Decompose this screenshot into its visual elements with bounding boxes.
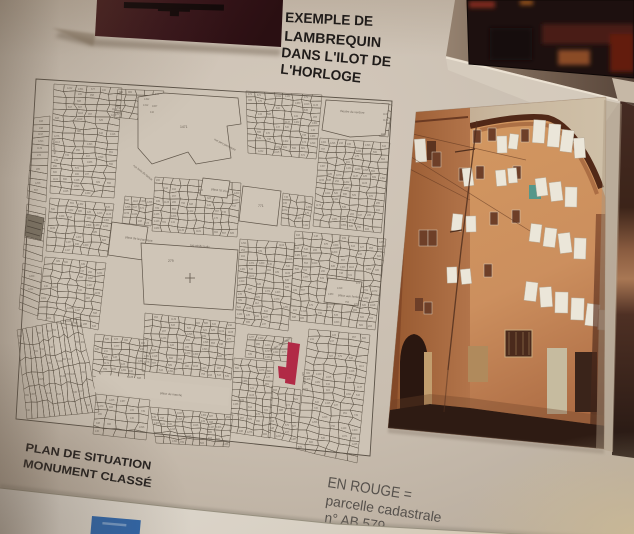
svg-text:1013: 1013 — [304, 103, 310, 106]
svg-text:566: 566 — [295, 268, 300, 271]
svg-text:592: 592 — [79, 276, 84, 279]
svg-text:1020: 1020 — [312, 262, 318, 265]
svg-text:957: 957 — [352, 336, 357, 339]
svg-text:1181: 1181 — [196, 230, 202, 233]
svg-text:300: 300 — [64, 261, 69, 264]
svg-text:1260: 1260 — [265, 344, 271, 347]
svg-text:493: 493 — [381, 133, 386, 136]
svg-text:1301: 1301 — [104, 219, 110, 222]
svg-text:274: 274 — [286, 404, 291, 407]
svg-text:1062: 1062 — [68, 209, 74, 212]
svg-text:771: 771 — [258, 204, 264, 208]
svg-text:902: 902 — [263, 433, 268, 436]
svg-text:1068: 1068 — [287, 258, 293, 261]
svg-text:189: 189 — [275, 271, 280, 274]
svg-text:1284: 1284 — [379, 241, 385, 244]
svg-text:1345: 1345 — [325, 402, 331, 405]
svg-text:127: 127 — [266, 376, 271, 379]
svg-text:399: 399 — [306, 372, 311, 375]
svg-text:721: 721 — [348, 274, 353, 277]
svg-text:1054: 1054 — [341, 224, 347, 227]
svg-text:621: 621 — [294, 398, 299, 401]
svg-text:497: 497 — [303, 255, 308, 258]
svg-text:747: 747 — [232, 205, 237, 208]
svg-text:1408: 1408 — [305, 378, 311, 381]
svg-text:1015: 1015 — [274, 151, 280, 154]
svg-text:146: 146 — [311, 129, 316, 132]
svg-text:715: 715 — [284, 196, 289, 199]
svg-text:553: 553 — [304, 262, 309, 265]
svg-text:401: 401 — [346, 161, 351, 164]
svg-text:955: 955 — [256, 343, 261, 346]
svg-text:1258: 1258 — [147, 201, 153, 204]
svg-text:1095: 1095 — [363, 169, 369, 172]
svg-text:1126: 1126 — [106, 213, 112, 216]
svg-text:1168: 1168 — [383, 113, 389, 116]
svg-text:510: 510 — [304, 248, 309, 251]
svg-text:1234: 1234 — [97, 272, 103, 275]
svg-text:967: 967 — [240, 417, 245, 420]
svg-text:1089: 1089 — [154, 227, 160, 230]
svg-text:579: 579 — [338, 355, 343, 358]
svg-text:1053: 1053 — [334, 321, 340, 324]
svg-text:811: 811 — [283, 146, 287, 149]
svg-text:953: 953 — [369, 247, 374, 250]
svg-text:518: 518 — [68, 216, 73, 219]
svg-text:1440: 1440 — [316, 373, 322, 376]
svg-text:701: 701 — [364, 289, 369, 292]
svg-text:588: 588 — [267, 113, 272, 116]
svg-text:349: 349 — [81, 263, 86, 266]
svg-text:516: 516 — [356, 394, 361, 397]
svg-text:292: 292 — [88, 271, 93, 274]
svg-text:1436: 1436 — [154, 213, 160, 216]
svg-text:895: 895 — [78, 210, 83, 213]
svg-text:391: 391 — [267, 269, 272, 272]
svg-text:185: 185 — [328, 173, 333, 176]
svg-text:1392: 1392 — [380, 177, 386, 180]
svg-text:1443: 1443 — [154, 220, 160, 223]
svg-text:1459: 1459 — [306, 206, 312, 209]
svg-text:529: 529 — [352, 194, 357, 197]
svg-text:835: 835 — [285, 279, 290, 282]
svg-text:1110: 1110 — [133, 200, 139, 203]
svg-text:1136: 1136 — [383, 119, 389, 122]
svg-text:800: 800 — [362, 337, 367, 340]
svg-text:845: 845 — [331, 265, 336, 268]
svg-text:720: 720 — [314, 407, 319, 410]
svg-text:175: 175 — [305, 212, 310, 215]
svg-text:1277: 1277 — [249, 336, 255, 339]
svg-text:1049: 1049 — [132, 213, 138, 216]
svg-text:657: 657 — [341, 259, 346, 262]
svg-text:284: 284 — [350, 213, 355, 216]
svg-text:474: 474 — [302, 141, 307, 144]
svg-text:949: 949 — [156, 200, 161, 203]
svg-text:951: 951 — [343, 412, 348, 415]
svg-text:941: 941 — [376, 209, 381, 212]
svg-text:1111: 1111 — [359, 365, 364, 368]
svg-text:1209: 1209 — [332, 251, 338, 254]
svg-text:279: 279 — [168, 259, 174, 263]
svg-text:1072: 1072 — [372, 290, 378, 293]
svg-text:875: 875 — [324, 243, 329, 246]
svg-text:148: 148 — [314, 235, 319, 238]
svg-text:253: 253 — [241, 249, 246, 252]
svg-text:286: 286 — [172, 201, 177, 204]
svg-text:1320: 1320 — [239, 280, 245, 283]
svg-text:781: 781 — [162, 221, 167, 224]
svg-text:838: 838 — [327, 179, 332, 182]
svg-text:1374: 1374 — [265, 290, 271, 293]
svg-text:339: 339 — [248, 353, 253, 356]
svg-text:1221: 1221 — [276, 435, 282, 438]
svg-text:1402: 1402 — [283, 140, 289, 143]
svg-text:882: 882 — [267, 370, 272, 373]
svg-text:1193: 1193 — [246, 307, 252, 310]
svg-text:1309: 1309 — [86, 224, 92, 227]
svg-text:1262: 1262 — [344, 181, 350, 184]
svg-text:806: 806 — [309, 441, 314, 444]
svg-text:1481: 1481 — [295, 254, 301, 257]
svg-text:1386: 1386 — [242, 380, 248, 383]
svg-text:1133: 1133 — [313, 104, 319, 107]
svg-text:516: 516 — [249, 268, 254, 271]
svg-text:748: 748 — [339, 272, 344, 275]
svg-text:1202: 1202 — [366, 268, 372, 271]
svg-text:1449: 1449 — [341, 427, 347, 430]
svg-text:1115: 1115 — [249, 275, 255, 278]
svg-text:910: 910 — [75, 243, 80, 246]
svg-text:427: 427 — [360, 246, 365, 249]
svg-text:1348: 1348 — [349, 370, 355, 373]
svg-text:1224: 1224 — [356, 150, 362, 153]
svg-text:1091: 1091 — [346, 393, 352, 396]
svg-text:977: 977 — [282, 351, 287, 354]
svg-text:350: 350 — [256, 420, 261, 423]
svg-text:1431: 1431 — [333, 198, 339, 201]
svg-text:195: 195 — [283, 202, 288, 205]
svg-text:385: 385 — [93, 231, 98, 234]
svg-text:824: 824 — [102, 239, 107, 242]
svg-text:141: 141 — [171, 221, 176, 224]
svg-text:1150: 1150 — [319, 179, 325, 182]
svg-text:362: 362 — [214, 231, 219, 234]
svg-text:1294: 1294 — [241, 242, 247, 245]
svg-text:1074: 1074 — [259, 369, 265, 372]
svg-text:499: 499 — [342, 237, 347, 240]
svg-text:961: 961 — [265, 383, 270, 386]
svg-text:905: 905 — [300, 317, 305, 320]
svg-text:479: 479 — [304, 96, 309, 99]
svg-text:1296: 1296 — [330, 142, 336, 145]
svg-text:976: 976 — [369, 195, 374, 198]
svg-text:1251: 1251 — [283, 306, 289, 309]
svg-text:673: 673 — [265, 350, 270, 353]
svg-text:509: 509 — [248, 418, 253, 421]
svg-text:1018: 1018 — [370, 304, 376, 307]
svg-text:1087: 1087 — [344, 187, 350, 190]
svg-text:605: 605 — [285, 286, 290, 289]
svg-text:1417: 1417 — [65, 249, 71, 252]
svg-text:962: 962 — [353, 309, 358, 312]
svg-text:1097: 1097 — [88, 277, 94, 280]
svg-text:265: 265 — [376, 202, 381, 205]
svg-text:195: 195 — [347, 143, 352, 146]
svg-text:881: 881 — [301, 147, 306, 150]
svg-text:864: 864 — [381, 158, 386, 161]
svg-text:412: 412 — [326, 383, 331, 386]
svg-text:1260: 1260 — [259, 262, 265, 265]
svg-text:1081: 1081 — [332, 218, 338, 221]
svg-text:614: 614 — [351, 245, 356, 248]
svg-text:232: 232 — [378, 248, 383, 251]
svg-text:1223: 1223 — [322, 416, 328, 419]
svg-text:655: 655 — [246, 321, 251, 324]
svg-text:112: 112 — [255, 302, 259, 305]
svg-text:169: 169 — [293, 289, 298, 292]
svg-text:1422: 1422 — [188, 210, 194, 213]
svg-text:307: 307 — [329, 355, 334, 358]
svg-text:1400: 1400 — [352, 429, 358, 432]
svg-text:709: 709 — [155, 207, 160, 210]
svg-text:425: 425 — [363, 175, 368, 178]
svg-text:536: 536 — [321, 437, 326, 440]
svg-text:1012: 1012 — [276, 95, 282, 98]
svg-text:237: 237 — [262, 323, 267, 326]
svg-text:1137: 1137 — [285, 121, 291, 124]
svg-text:973: 973 — [356, 282, 361, 285]
svg-text:435: 435 — [246, 314, 251, 317]
svg-text:1323: 1323 — [140, 200, 146, 203]
svg-text:275: 275 — [355, 155, 360, 158]
svg-text:792: 792 — [181, 202, 186, 205]
svg-text:557: 557 — [222, 232, 227, 235]
svg-text:1024: 1024 — [325, 192, 331, 195]
svg-text:721: 721 — [264, 409, 269, 412]
svg-text:476: 476 — [256, 413, 261, 416]
svg-text:168: 168 — [138, 220, 143, 223]
svg-text:1466: 1466 — [296, 217, 302, 220]
svg-text:1319: 1319 — [337, 287, 343, 290]
svg-text:1402: 1402 — [76, 236, 82, 239]
svg-text:411: 411 — [207, 204, 211, 207]
svg-text:819: 819 — [320, 277, 325, 280]
svg-text:701: 701 — [369, 317, 374, 320]
svg-text:1069: 1069 — [333, 244, 339, 247]
svg-text:1393: 1393 — [365, 144, 371, 147]
svg-text:1235: 1235 — [352, 443, 358, 446]
svg-text:347: 347 — [358, 214, 363, 217]
svg-text:792: 792 — [357, 226, 362, 229]
svg-text:1125: 1125 — [164, 201, 170, 204]
svg-text:1437: 1437 — [66, 241, 72, 244]
svg-text:854: 854 — [172, 208, 177, 211]
svg-text:137: 137 — [276, 126, 281, 129]
svg-text:888: 888 — [292, 412, 297, 415]
svg-text:738: 738 — [267, 138, 272, 141]
svg-text:1363: 1363 — [340, 266, 346, 269]
svg-text:733: 733 — [302, 134, 307, 137]
svg-text:715: 715 — [222, 211, 227, 214]
svg-text:608: 608 — [189, 203, 194, 206]
svg-text:579: 579 — [285, 424, 290, 427]
svg-text:810: 810 — [276, 107, 281, 110]
svg-text:842: 842 — [315, 401, 320, 404]
svg-text:103: 103 — [270, 420, 275, 423]
svg-text:756: 756 — [331, 425, 336, 428]
svg-text:1367: 1367 — [320, 165, 326, 168]
svg-text:1255: 1255 — [125, 206, 131, 209]
svg-text:1371: 1371 — [249, 262, 255, 265]
svg-text:171: 171 — [327, 306, 332, 309]
svg-text:648: 648 — [270, 427, 275, 430]
svg-text:305: 305 — [375, 269, 380, 272]
svg-text:1380: 1380 — [295, 102, 301, 105]
svg-text:121: 121 — [250, 387, 255, 390]
svg-text:674: 674 — [140, 207, 145, 210]
svg-text:1167: 1167 — [263, 316, 269, 319]
svg-text:596: 596 — [292, 147, 297, 150]
svg-text:252: 252 — [335, 180, 340, 183]
svg-text:1403: 1403 — [275, 291, 281, 294]
svg-text:1172: 1172 — [316, 204, 322, 207]
svg-text:698: 698 — [292, 316, 297, 319]
svg-text:1340: 1340 — [273, 351, 279, 354]
svg-text:217: 217 — [285, 431, 290, 434]
svg-text:388: 388 — [279, 409, 284, 412]
svg-text:1071: 1071 — [342, 435, 348, 438]
svg-text:582: 582 — [359, 324, 364, 327]
svg-text:1025: 1025 — [326, 376, 332, 379]
svg-text:283: 283 — [313, 116, 318, 119]
svg-text:1433: 1433 — [265, 356, 271, 359]
svg-text:1431: 1431 — [285, 95, 291, 98]
svg-text:845: 845 — [257, 283, 262, 286]
svg-text:943: 943 — [296, 234, 301, 237]
svg-text:671: 671 — [301, 154, 306, 157]
svg-text:603: 603 — [377, 255, 382, 258]
svg-text:729: 729 — [258, 250, 263, 253]
svg-text:732: 732 — [318, 312, 323, 315]
svg-text:243: 243 — [339, 142, 344, 145]
svg-text:1377: 1377 — [303, 276, 309, 279]
svg-text:614: 614 — [248, 406, 253, 409]
svg-text:1159: 1159 — [124, 212, 130, 215]
svg-text:870: 870 — [298, 446, 303, 449]
svg-text:176: 176 — [214, 217, 219, 220]
svg-text:1137: 1137 — [357, 386, 363, 389]
svg-text:470: 470 — [266, 132, 271, 135]
svg-text:1070: 1070 — [336, 174, 342, 177]
svg-text:1214: 1214 — [103, 225, 109, 228]
svg-text:317: 317 — [133, 206, 138, 209]
svg-text:1321: 1321 — [321, 141, 327, 144]
svg-text:1223: 1223 — [97, 212, 103, 215]
svg-text:206: 206 — [313, 249, 318, 252]
svg-text:1299: 1299 — [310, 142, 316, 145]
svg-text:776: 776 — [347, 377, 352, 380]
svg-text:1160: 1160 — [285, 272, 291, 275]
svg-text:1173: 1173 — [349, 219, 355, 222]
svg-text:205: 205 — [367, 214, 372, 217]
svg-text:1116: 1116 — [349, 266, 355, 269]
svg-text:1461: 1461 — [240, 268, 246, 271]
svg-text:546: 546 — [286, 265, 291, 268]
svg-text:1157: 1157 — [341, 218, 347, 221]
svg-text:545: 545 — [342, 206, 347, 209]
svg-text:404: 404 — [365, 228, 370, 231]
svg-text:434: 434 — [294, 115, 299, 118]
svg-text:1130: 1130 — [179, 229, 185, 232]
svg-text:1287: 1287 — [291, 438, 297, 441]
svg-text:767: 767 — [321, 148, 326, 151]
svg-text:1370: 1370 — [274, 298, 280, 301]
svg-text:1430: 1430 — [94, 224, 100, 227]
svg-text:644: 644 — [382, 145, 387, 148]
svg-text:747: 747 — [80, 270, 85, 273]
svg-text:673: 673 — [145, 222, 150, 225]
svg-text:845: 845 — [304, 109, 309, 112]
svg-text:437: 437 — [334, 404, 339, 407]
svg-text:812: 812 — [264, 310, 269, 313]
svg-text:1420: 1420 — [258, 337, 264, 340]
svg-text:332: 332 — [255, 315, 260, 318]
svg-text:749: 749 — [354, 414, 359, 417]
svg-text:754: 754 — [345, 301, 350, 304]
svg-text:182: 182 — [352, 437, 357, 440]
svg-text:911: 911 — [293, 309, 297, 312]
svg-text:360: 360 — [87, 217, 92, 220]
svg-text:838: 838 — [349, 357, 354, 360]
svg-text:1320: 1320 — [83, 244, 89, 247]
svg-text:260: 260 — [321, 270, 326, 273]
svg-text:899: 899 — [372, 176, 377, 179]
svg-text:1434: 1434 — [346, 167, 352, 170]
svg-text:520: 520 — [334, 192, 339, 195]
svg-text:1082: 1082 — [315, 381, 321, 384]
svg-text:425: 425 — [87, 211, 92, 214]
svg-text:540: 540 — [285, 126, 290, 129]
svg-text:1318: 1318 — [301, 310, 307, 313]
svg-text:836: 836 — [349, 225, 354, 228]
svg-text:1039: 1039 — [355, 168, 361, 171]
svg-text:720: 720 — [78, 289, 83, 292]
svg-text:1301: 1301 — [312, 122, 318, 125]
svg-text:578: 578 — [334, 314, 339, 317]
svg-text:606: 606 — [360, 316, 365, 319]
svg-text:1137: 1137 — [353, 175, 359, 178]
svg-text:307: 307 — [248, 288, 253, 291]
svg-text:551: 551 — [70, 202, 75, 205]
svg-text:203: 203 — [368, 325, 373, 328]
svg-text:241: 241 — [310, 338, 315, 341]
svg-text:579: 579 — [303, 387, 309, 392]
svg-text:1276: 1276 — [247, 431, 253, 434]
svg-text:1260: 1260 — [363, 297, 369, 300]
svg-text:1462: 1462 — [294, 121, 300, 124]
svg-text:1256: 1256 — [312, 421, 318, 424]
svg-text:893: 893 — [273, 389, 278, 392]
svg-text:479: 479 — [309, 304, 314, 307]
svg-text:605: 605 — [230, 232, 235, 235]
svg-text:1103: 1103 — [249, 394, 255, 397]
svg-text:1452: 1452 — [78, 203, 84, 206]
svg-text:130: 130 — [268, 263, 273, 266]
svg-text:620: 620 — [362, 304, 367, 307]
svg-text:929: 929 — [256, 296, 261, 299]
svg-text:247: 247 — [330, 340, 335, 343]
